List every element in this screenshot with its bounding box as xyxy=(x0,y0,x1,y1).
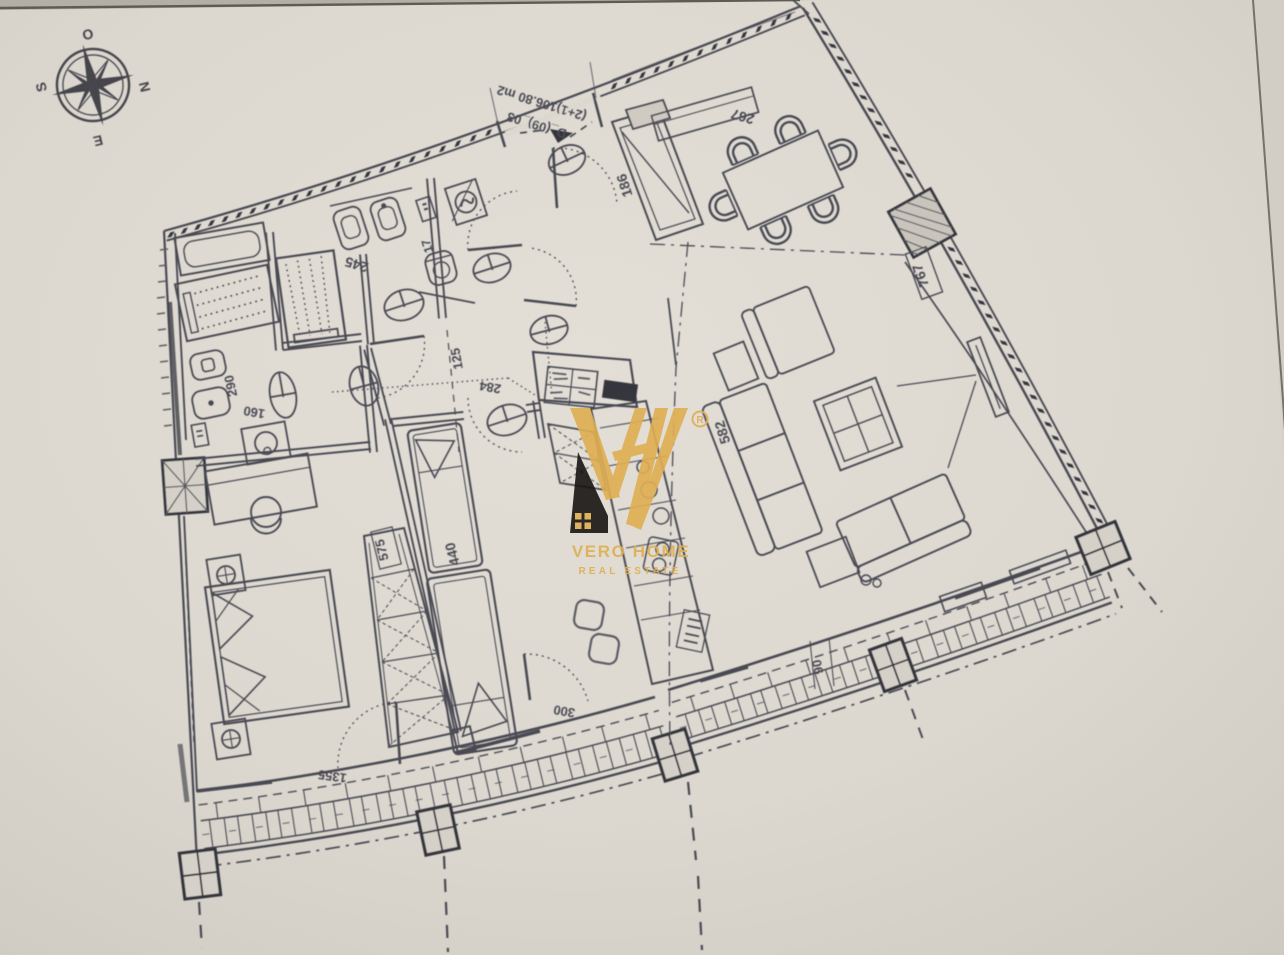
svg-text:R: R xyxy=(696,415,704,426)
svg-text:REAL ESTATE: REAL ESTATE xyxy=(579,566,682,577)
svg-text:VERO HOME: VERO HOME xyxy=(572,542,690,561)
svg-text:90: 90 xyxy=(809,658,827,675)
